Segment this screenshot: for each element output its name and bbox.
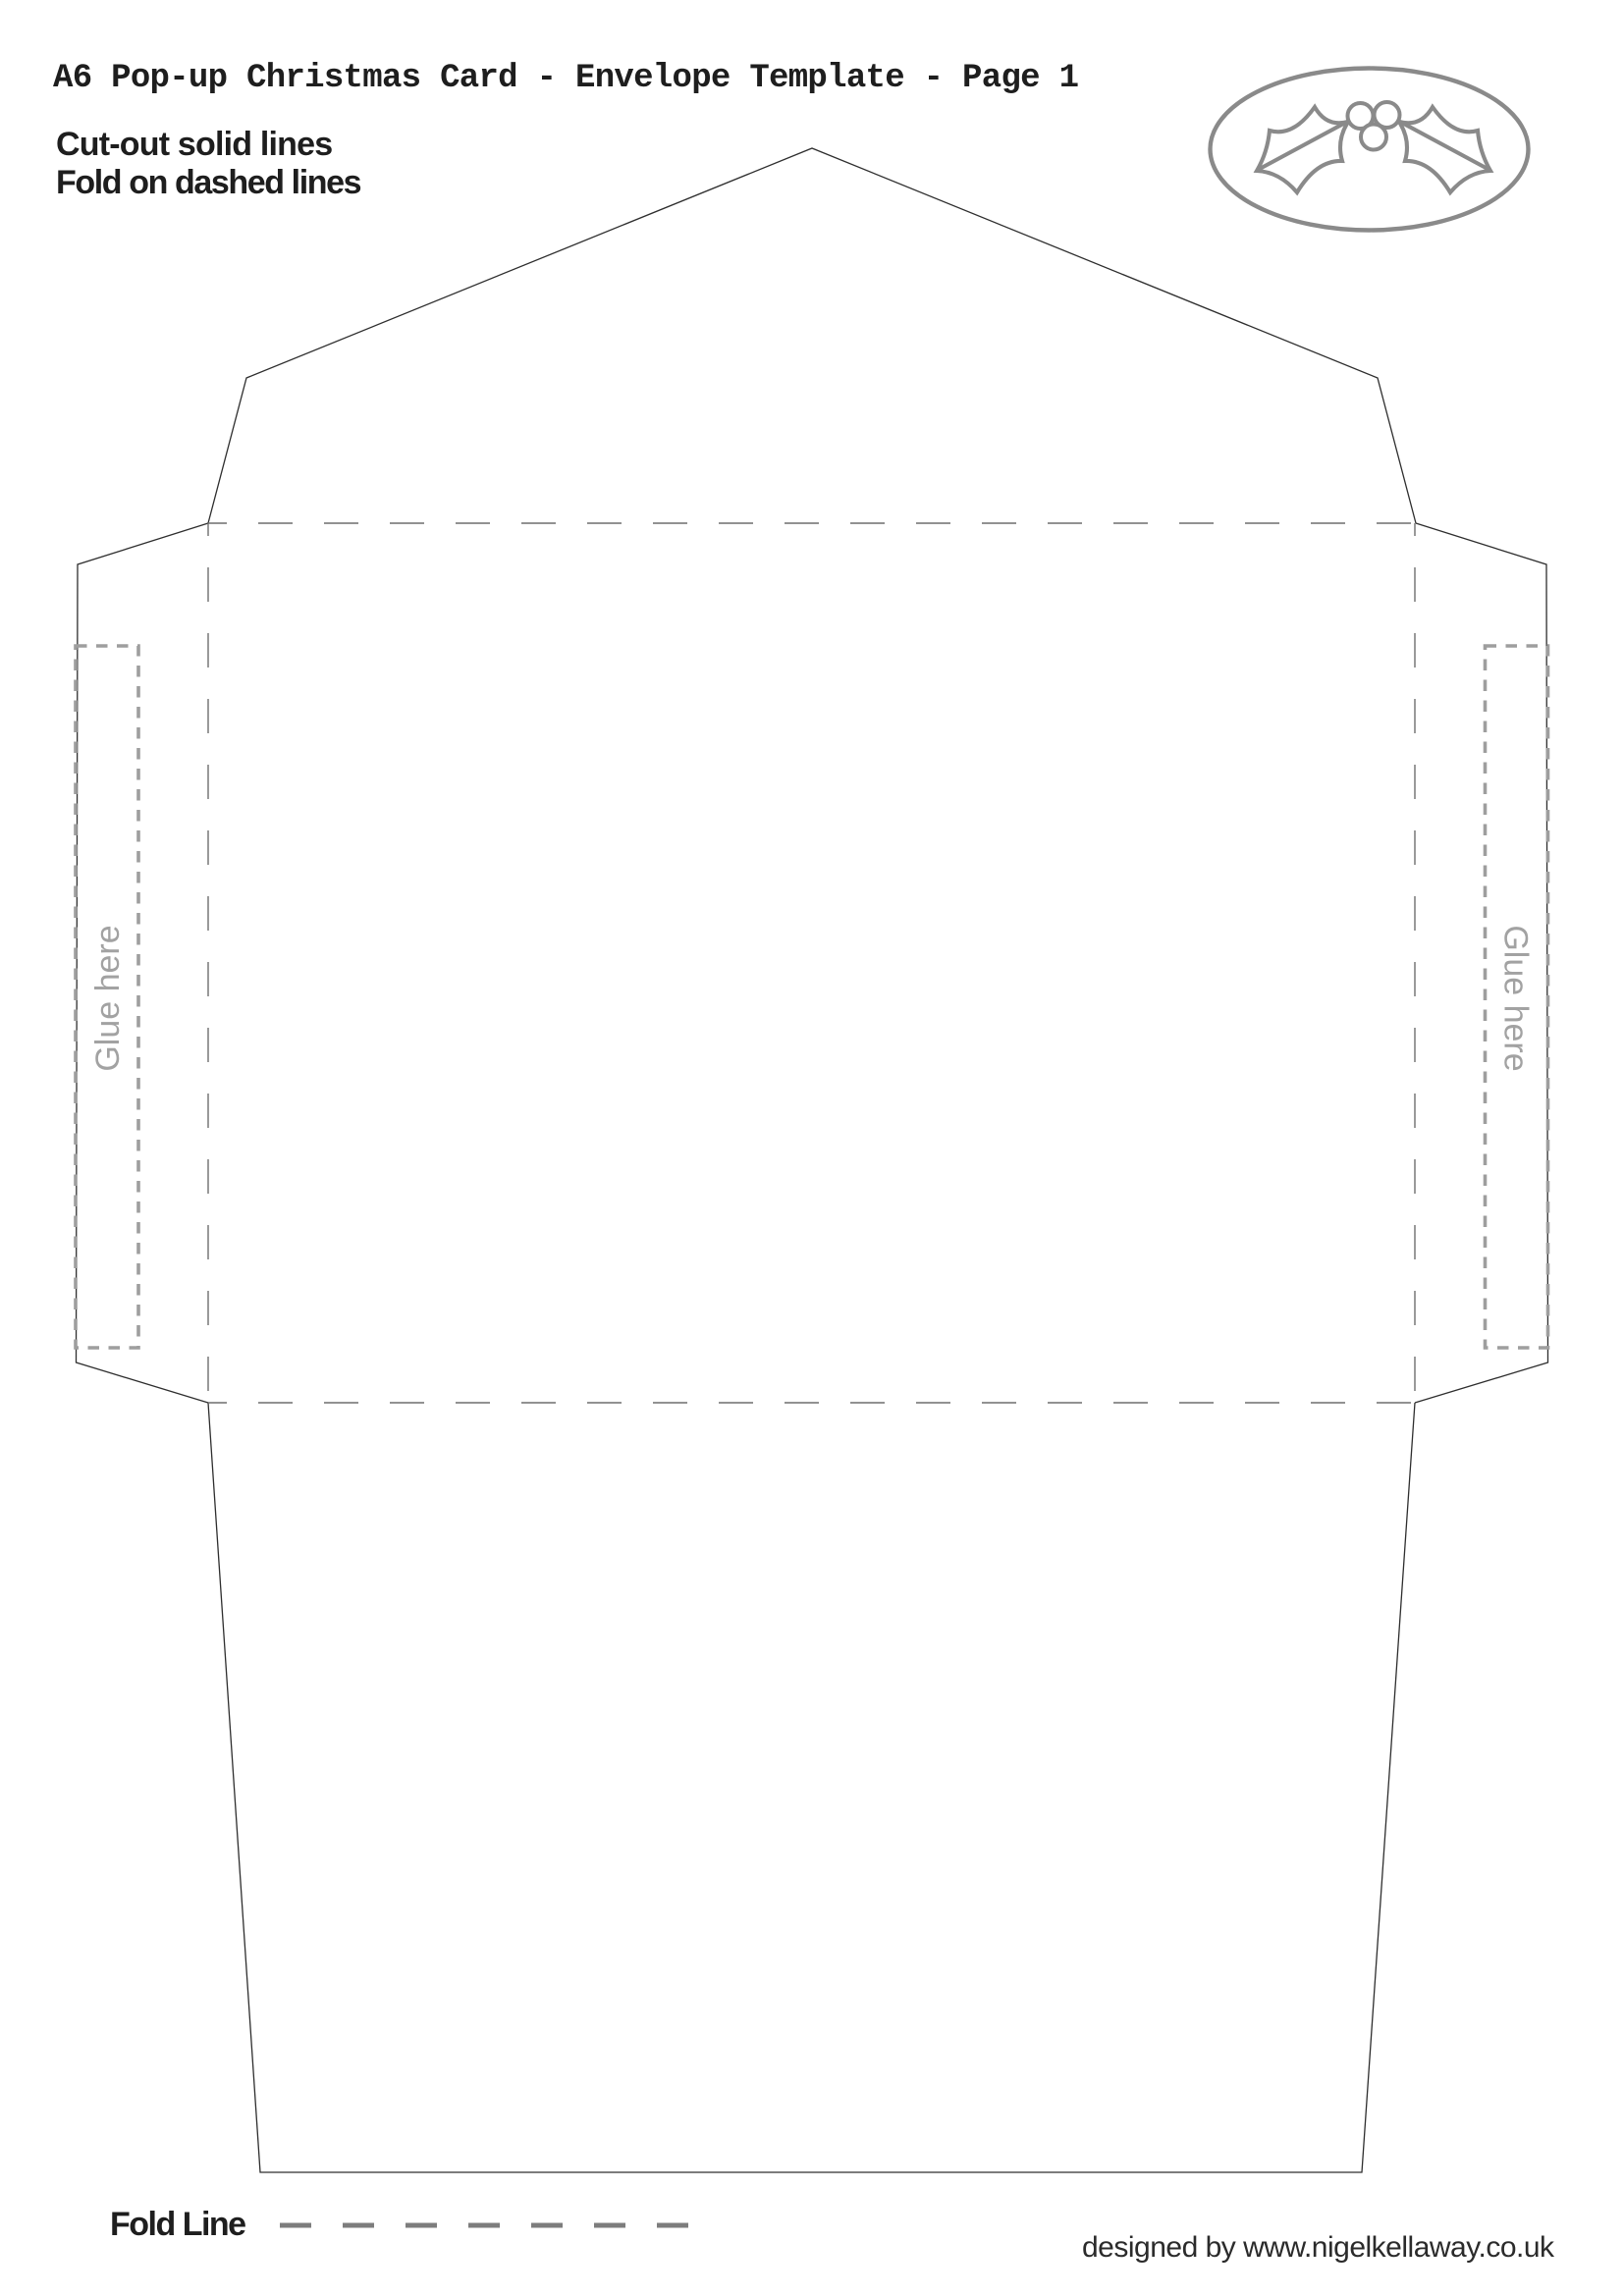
- svg-text:Glue here: Glue here: [89, 925, 127, 1071]
- svg-text:Fold on dashed lines: Fold on dashed lines: [56, 164, 361, 201]
- svg-text:Glue here: Glue here: [1497, 925, 1535, 1071]
- svg-text:Fold Line: Fold Line: [110, 2206, 245, 2243]
- svg-text:Cut-out solid lines: Cut-out solid lines: [56, 126, 332, 163]
- svg-text:designed by www.nigelkellaway.: designed by www.nigelkellaway.co.uk: [1082, 2231, 1555, 2264]
- svg-text:A6 Pop-up Christmas Card - Env: A6 Pop-up Christmas Card - Envelope Temp…: [53, 60, 1078, 97]
